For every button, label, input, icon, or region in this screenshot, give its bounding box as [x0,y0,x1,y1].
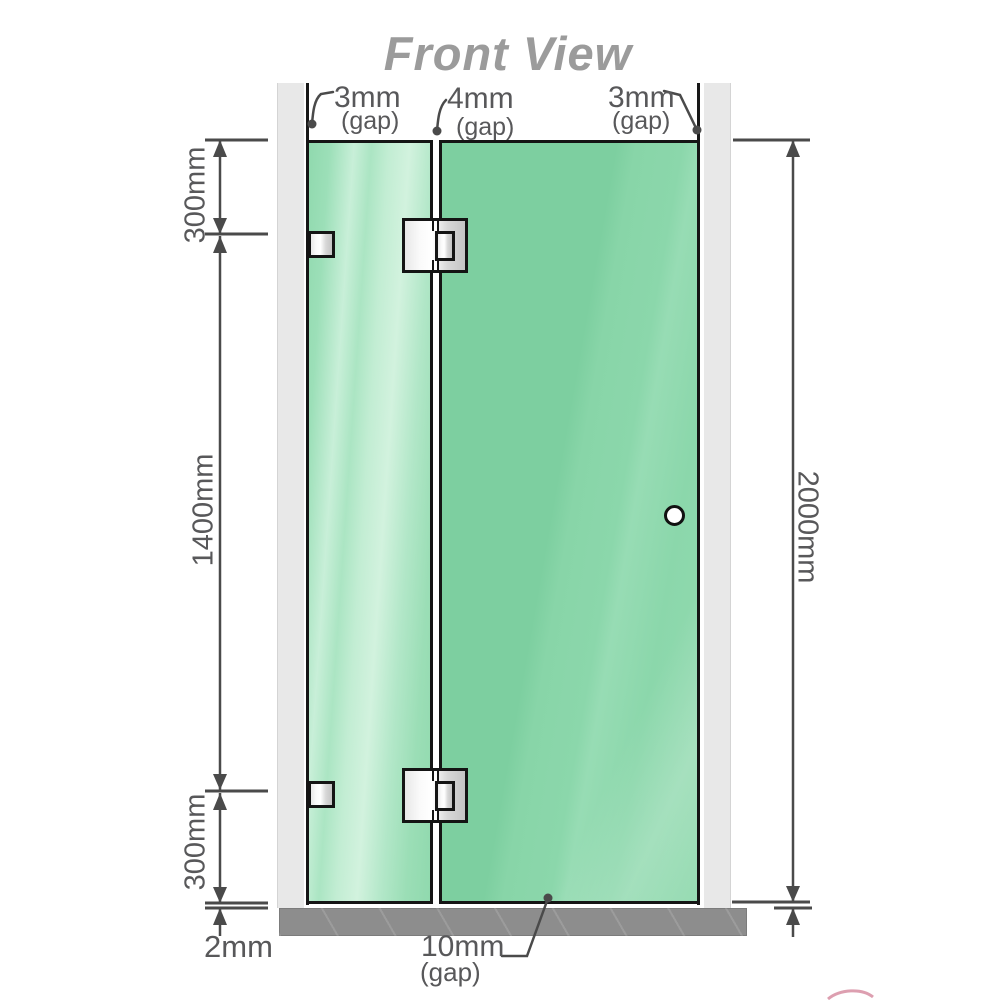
hinge-gap-line [432,260,439,270]
diagram-title: Front View [0,26,1000,81]
gap-qualifier-right: (gap) [612,107,670,136]
height-label-top-300: 300mm [180,147,213,244]
hinge-gap-line [432,221,439,231]
gap-label-middle: 4mm [447,82,514,116]
hinge-gap-line [432,810,439,820]
floor-step-label-2mm: 2mm [204,929,273,965]
door-knob [664,505,685,526]
left-wall [277,83,304,908]
gap-qualifier-middle: (gap) [456,113,514,142]
hinge-tongue [435,781,455,811]
wall-bracket-bottom [308,781,335,808]
gap-qualifier-left: (gap) [341,107,399,136]
hinge-tongue [435,231,455,261]
glass-hinge-bottom [402,768,468,823]
red-corner-mark [828,991,873,999]
right-wall [704,83,731,908]
hinge-gap-line [432,771,439,781]
height-label-middle-1400: 1400mm [188,454,221,567]
front-view-diagram: Front View [0,0,1000,1000]
bottom-gap-qualifier: (gap) [420,957,481,988]
height-label-bottom-300: 300mm [180,794,213,891]
floor-base [279,908,747,936]
wall-bracket-top [308,231,335,258]
total-height-label-2000: 2000mm [791,471,824,584]
glass-hinge-top [402,218,468,273]
door-glass-panel [439,140,700,904]
